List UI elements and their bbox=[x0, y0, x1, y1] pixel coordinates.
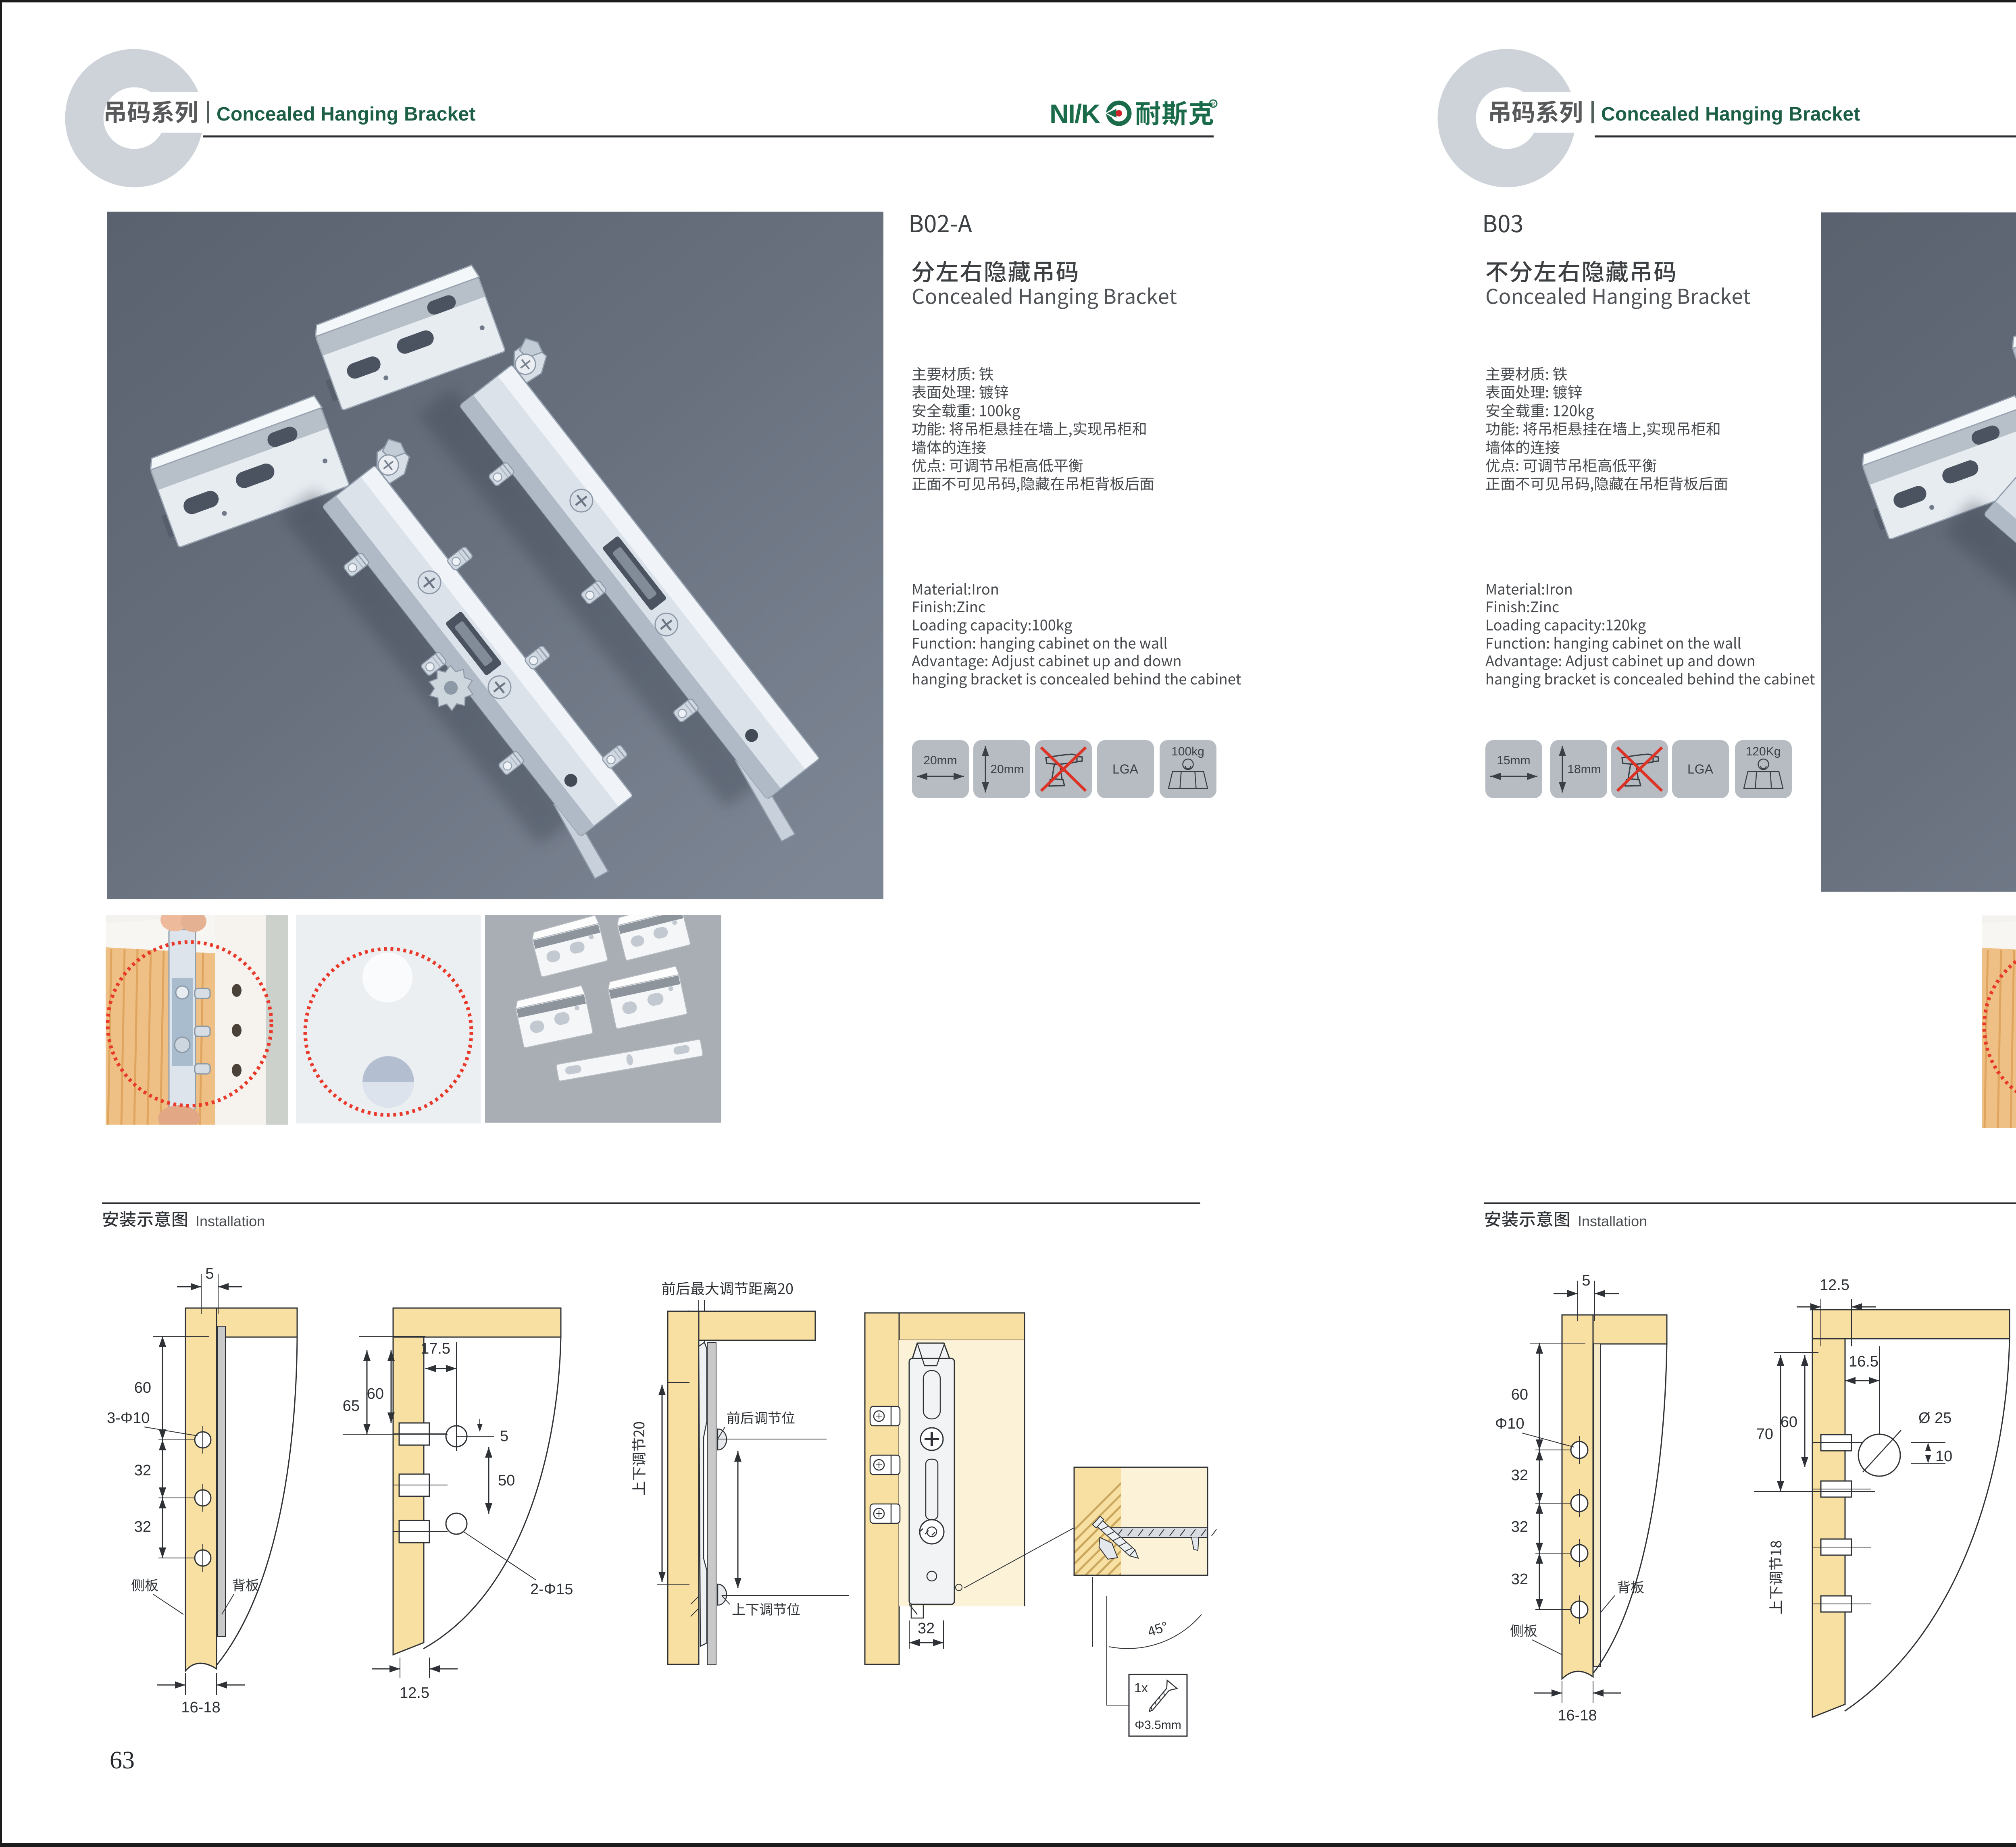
svg-text:Φ3.5mm: Φ3.5mm bbox=[1135, 1718, 1181, 1732]
svg-text:60: 60 bbox=[1781, 1414, 1797, 1431]
svg-text:60: 60 bbox=[134, 1379, 151, 1396]
svg-text:Φ10: Φ10 bbox=[1495, 1415, 1524, 1432]
svg-text:3-Φ10: 3-Φ10 bbox=[107, 1410, 150, 1427]
svg-text:10: 10 bbox=[1935, 1448, 1952, 1465]
svg-text:60: 60 bbox=[1511, 1386, 1528, 1403]
svg-text:32: 32 bbox=[1511, 1467, 1528, 1484]
svg-text:32: 32 bbox=[918, 1620, 935, 1637]
svg-text:LGA: LGA bbox=[1112, 762, 1139, 776]
svg-text:20mm: 20mm bbox=[923, 754, 957, 767]
svg-text:5: 5 bbox=[1582, 1272, 1590, 1289]
svg-text:45°: 45° bbox=[1145, 1619, 1170, 1640]
svg-text:50: 50 bbox=[498, 1472, 515, 1489]
svg-text:100kg: 100kg bbox=[1171, 745, 1204, 758]
svg-text:12.5: 12.5 bbox=[400, 1685, 429, 1701]
svg-text:16-18: 16-18 bbox=[1558, 1707, 1597, 1724]
svg-text:5: 5 bbox=[205, 1265, 214, 1282]
svg-text:5: 5 bbox=[500, 1428, 508, 1445]
svg-text:70: 70 bbox=[1756, 1426, 1773, 1443]
svg-text:120Kg: 120Kg bbox=[1746, 745, 1781, 758]
svg-text:17.5: 17.5 bbox=[421, 1340, 450, 1357]
svg-text:15mm: 15mm bbox=[1497, 754, 1530, 767]
svg-text:16-18: 16-18 bbox=[181, 1699, 220, 1716]
svg-text:2-Φ15: 2-Φ15 bbox=[530, 1581, 573, 1598]
svg-text:18mm: 18mm bbox=[1567, 763, 1601, 776]
svg-text:LGA: LGA bbox=[1687, 762, 1714, 776]
svg-text:32: 32 bbox=[134, 1462, 151, 1479]
svg-text:Ø 25: Ø 25 bbox=[1918, 1410, 1951, 1427]
svg-text:1x: 1x bbox=[1134, 1681, 1148, 1695]
svg-text:32: 32 bbox=[134, 1518, 151, 1535]
svg-text:32: 32 bbox=[1511, 1518, 1528, 1535]
svg-text:60: 60 bbox=[367, 1385, 384, 1402]
svg-text:12.5: 12.5 bbox=[1820, 1277, 1849, 1294]
svg-text:65: 65 bbox=[343, 1398, 360, 1414]
svg-text:32: 32 bbox=[1511, 1571, 1528, 1588]
svg-text:16.5: 16.5 bbox=[1849, 1353, 1879, 1370]
svg-text:20mm: 20mm bbox=[990, 763, 1024, 776]
svg-text:NI/K: NI/K bbox=[1050, 99, 1100, 129]
svg-text:R: R bbox=[1211, 101, 1215, 107]
